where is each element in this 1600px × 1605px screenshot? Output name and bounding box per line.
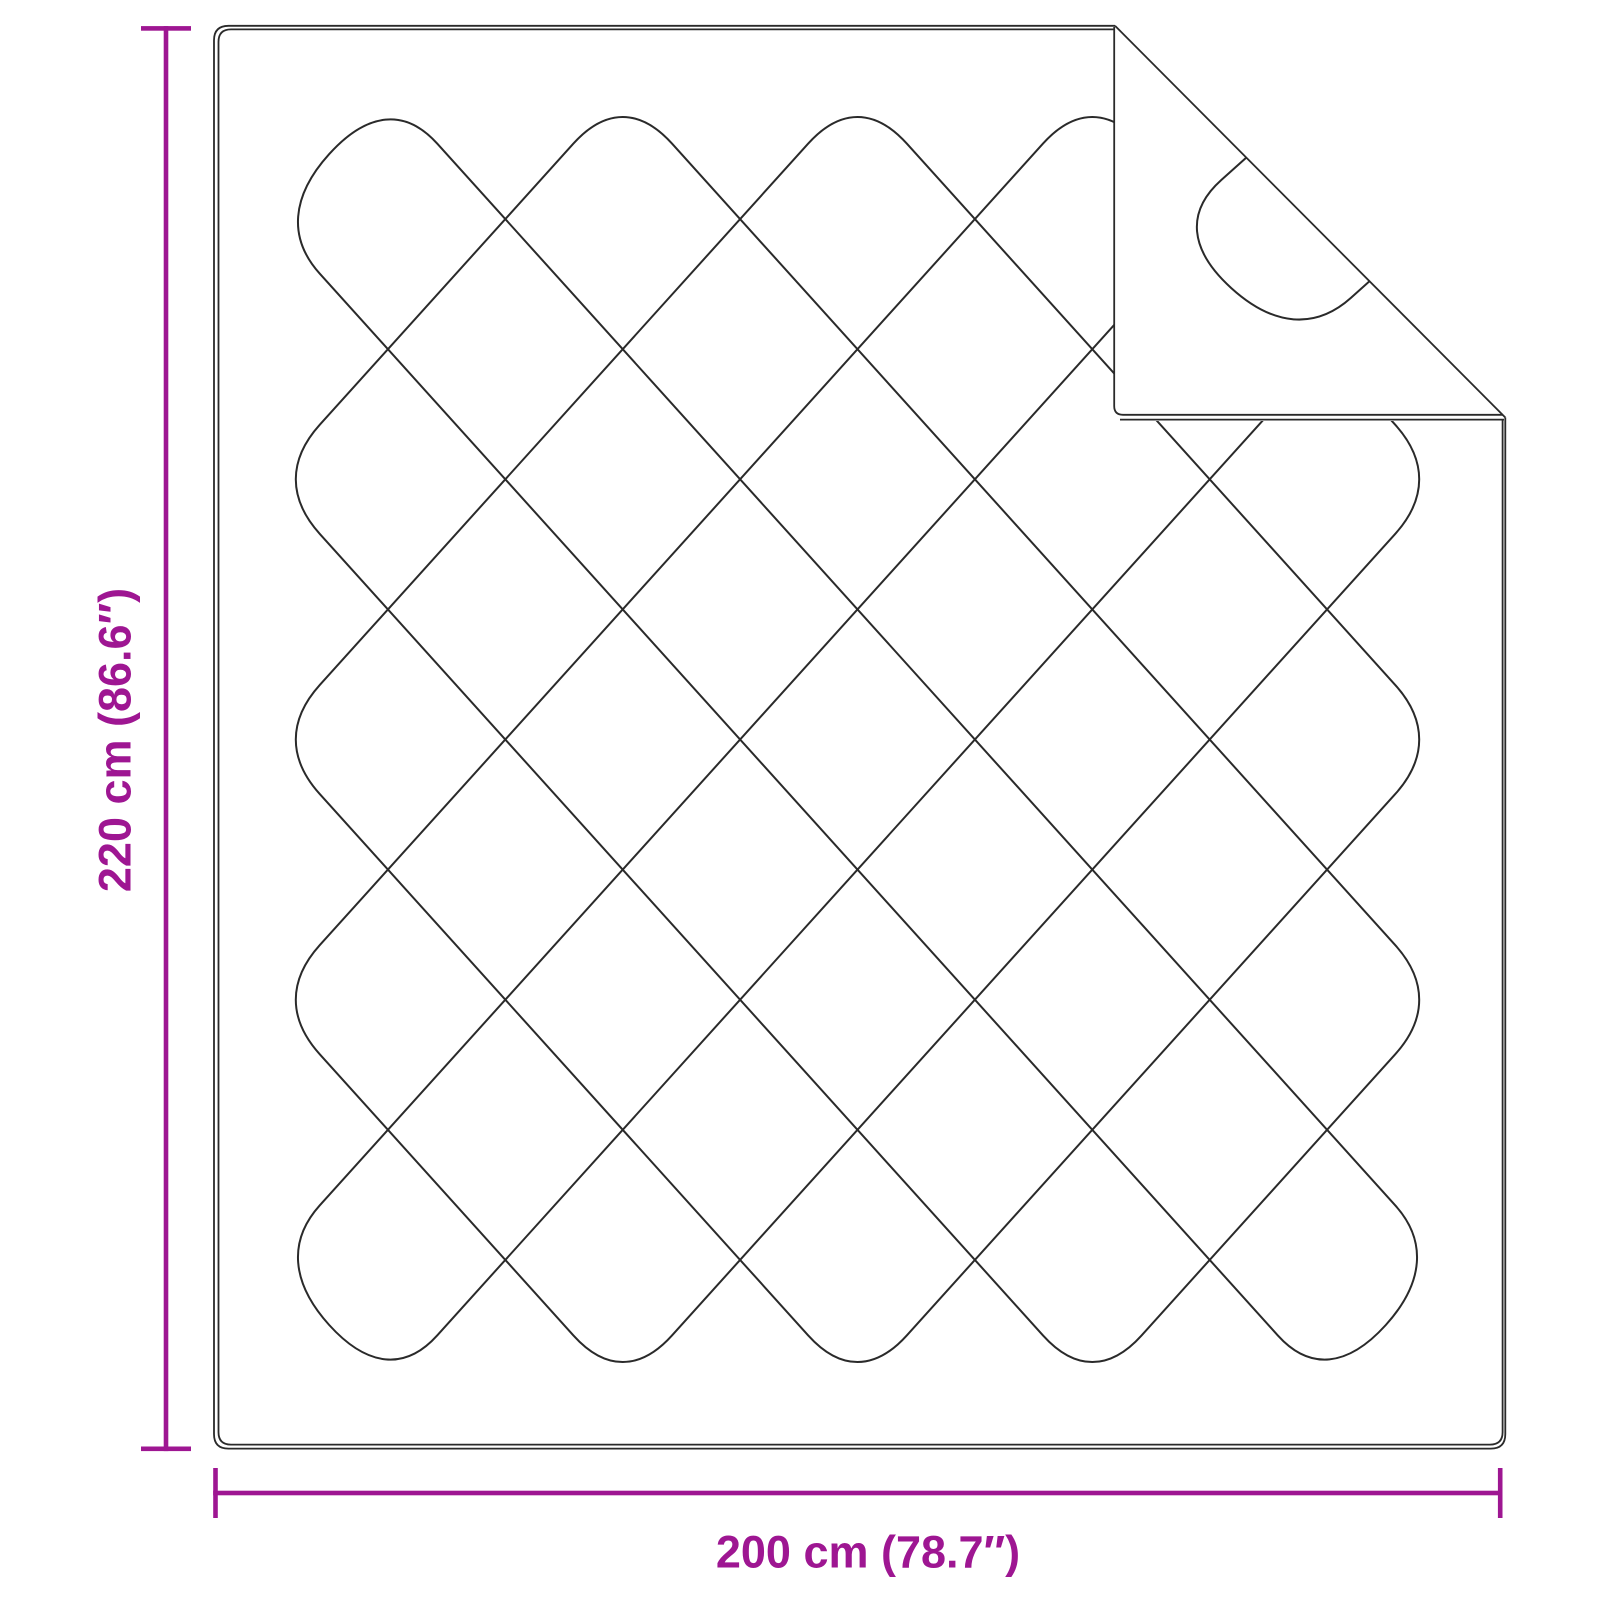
svg-text:200 cm (78.7″): 200 cm (78.7″) xyxy=(716,1527,1020,1578)
svg-text:220 cm (86.6″): 220 cm (86.6″) xyxy=(90,588,141,892)
